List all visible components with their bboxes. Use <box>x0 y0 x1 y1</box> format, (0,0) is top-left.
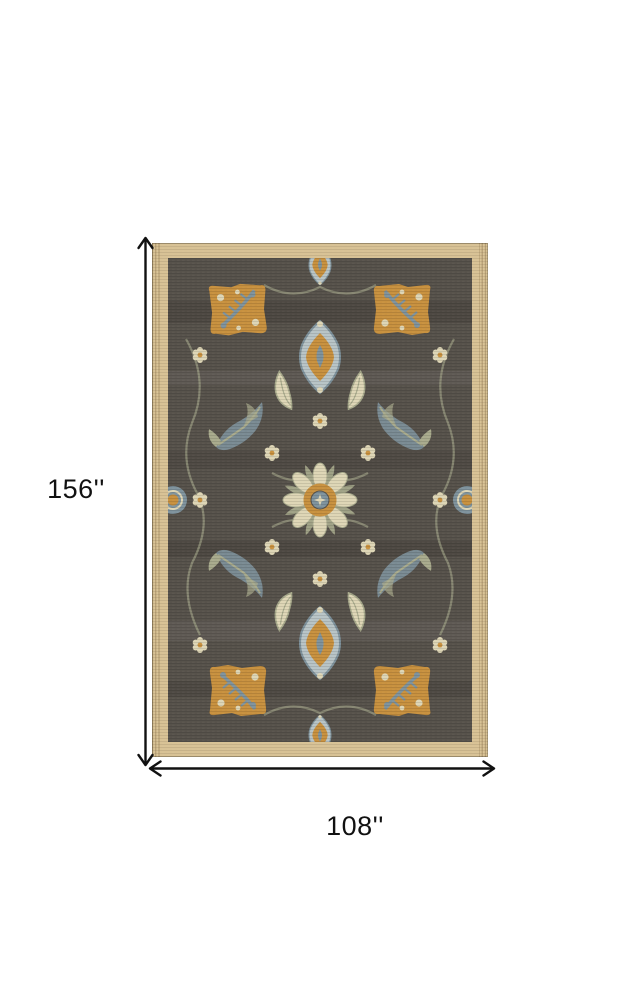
arrowhead-down-icon <box>139 755 153 765</box>
rug-artwork <box>152 243 488 757</box>
arrowhead-left-icon <box>150 762 161 776</box>
height-dimension-arrow <box>139 238 153 765</box>
width-dimension-arrow <box>150 762 494 776</box>
width-dimension-label: 108'' <box>313 811 397 841</box>
rug-image <box>152 243 488 757</box>
arrowhead-right-icon <box>484 762 495 776</box>
height-dimension-label: 156'' <box>34 474 118 504</box>
product-dimension-diagram: 156'' 108'' <box>0 0 644 1000</box>
arrowhead-up-icon <box>139 238 153 248</box>
